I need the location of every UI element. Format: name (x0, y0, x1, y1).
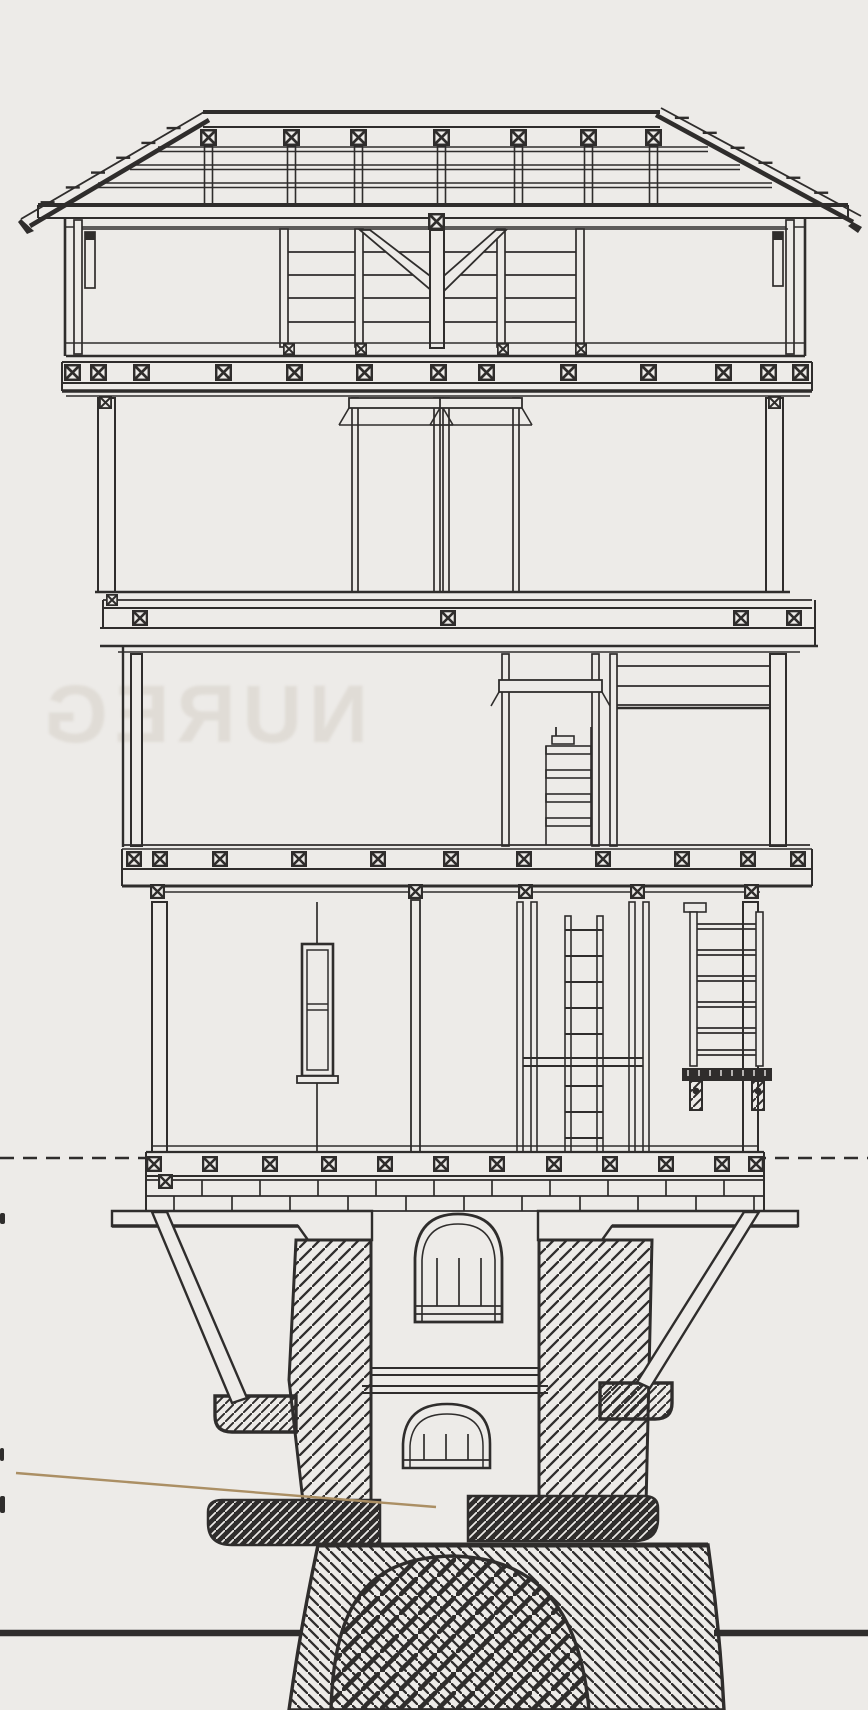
pier-foot-right (468, 1496, 658, 1541)
story-4 (146, 900, 772, 1152)
foundation (0, 1545, 868, 1710)
story2-lintel-b (440, 398, 522, 408)
stair-platform (682, 1068, 772, 1081)
story4-mid-post (411, 900, 420, 1152)
shaft-ladder (523, 916, 643, 1152)
brick-course (146, 1180, 764, 1211)
masonry-pier-right (539, 1240, 652, 1506)
corbel-left (215, 1396, 296, 1432)
section-drawing: NUREG (0, 0, 868, 1710)
attic-story (65, 218, 805, 356)
v-brace-left (360, 230, 438, 291)
masonry-pier-left (289, 1240, 371, 1510)
corbel-right (600, 1383, 672, 1419)
pier-foot-left (208, 1500, 380, 1545)
strut-right (637, 1212, 759, 1388)
page-edge-marks (0, 1213, 5, 1513)
purlin-lines (98, 147, 772, 188)
story3-left-post (131, 654, 142, 846)
platform-leg (752, 1081, 764, 1110)
story2-right-post (766, 398, 783, 592)
bleedthrough-watermark: NUREG (37, 669, 368, 760)
masonry-base (112, 1211, 798, 1545)
scanned-page: NUREG (0, 0, 868, 1710)
strut-left (152, 1212, 247, 1403)
story2-lintel-a (349, 398, 443, 408)
story2-left-post (98, 398, 115, 592)
platform-leg (690, 1081, 702, 1110)
story4-window (297, 944, 338, 1083)
story4-left-post (152, 902, 167, 1152)
arched-window-lower (403, 1404, 490, 1468)
attic-center-post (430, 230, 444, 348)
arched-window-upper (415, 1214, 502, 1322)
story3-right-post (770, 654, 786, 846)
story4-stair (682, 903, 772, 1110)
story-2 (95, 398, 790, 592)
story3-stair (546, 727, 591, 845)
story3-lintel (499, 680, 602, 692)
ridge-posts (205, 146, 658, 205)
floor-band-3 (100, 600, 818, 652)
story3-plank-lines (617, 666, 770, 708)
v-brace-right (437, 230, 506, 291)
